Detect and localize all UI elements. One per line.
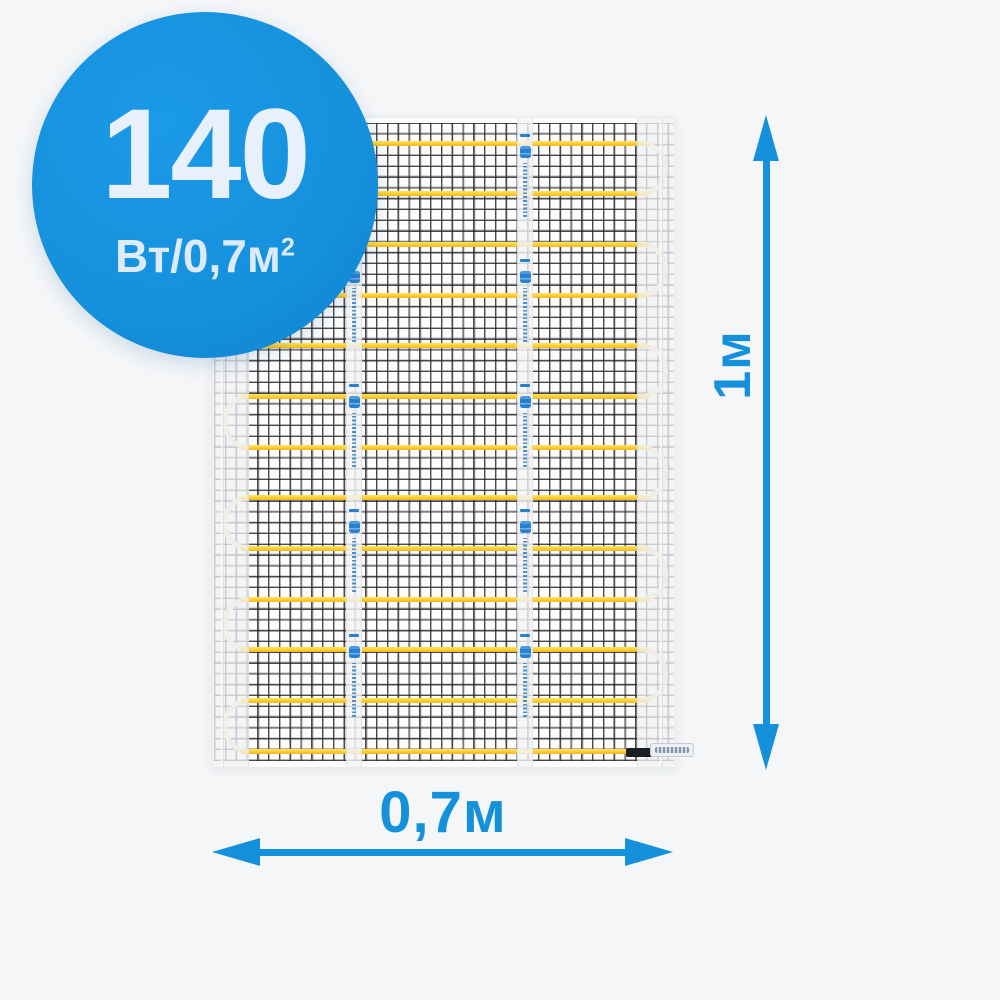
brand-emblem-icon: [349, 521, 360, 533]
selvedge-right: [637, 118, 675, 767]
tape-dash: [349, 634, 359, 637]
tape-dash: [520, 509, 530, 512]
tape-print-group: [518, 134, 532, 217]
heating-cable-run: [240, 495, 650, 500]
heating-cable-run: [240, 749, 650, 754]
tape-micro-print: [523, 163, 527, 217]
heating-cable-run: [240, 445, 650, 450]
tape-dash: [520, 134, 530, 137]
tape-micro-print: [352, 538, 356, 592]
tape-dash: [520, 634, 530, 637]
brand-emblem-icon: [349, 646, 360, 658]
arrow-up-icon: [753, 115, 779, 161]
brand-emblem-icon: [349, 396, 360, 408]
brand-emblem-icon: [520, 646, 531, 658]
dimension-line: [763, 161, 770, 724]
brand-emblem-icon: [520, 271, 531, 283]
tape-print-group: [347, 509, 361, 592]
tape-micro-print: [523, 538, 527, 592]
power-value: 140: [101, 91, 309, 219]
tape-micro-print: [352, 663, 356, 717]
tape-print-group: [347, 634, 361, 717]
heating-cable-run: [240, 597, 650, 602]
tape-print-group: [347, 384, 361, 467]
heating-cable-run: [240, 343, 650, 348]
height-dimension-arrow: [753, 115, 779, 770]
heating-cable-run: [240, 647, 650, 652]
arrow-left-icon: [212, 838, 260, 866]
brand-emblem-icon: [520, 146, 531, 158]
fixing-tape: [517, 118, 533, 767]
tape-micro-print: [523, 288, 527, 342]
heating-cable-run: [240, 546, 650, 551]
product-image: 1м 0,7м 140 Вт/0,7м2: [0, 0, 1000, 1000]
tape-dash: [520, 384, 530, 387]
tape-micro-print: [523, 663, 527, 717]
heating-cable-run: [240, 394, 650, 399]
tape-print-group: [518, 509, 532, 592]
tape-print-group: [518, 634, 532, 717]
tape-crease: [660, 118, 663, 767]
power-unit-superscript: 2: [281, 234, 295, 262]
arrow-right-icon: [625, 838, 673, 866]
dimension-line: [260, 849, 625, 856]
tape-micro-print: [352, 413, 356, 467]
arrow-down-icon: [753, 724, 779, 770]
height-dimension-label: 1м: [703, 305, 763, 425]
tape-dash: [349, 509, 359, 512]
power-unit-text: Вт/0,7м: [115, 230, 281, 282]
heating-cable-run: [240, 698, 650, 703]
tape-micro-print: [352, 288, 356, 342]
tape-dash: [520, 259, 530, 262]
brand-emblem-icon: [520, 521, 531, 533]
width-dimension-label: 0,7м: [343, 783, 543, 843]
brand-emblem-icon: [520, 396, 531, 408]
end-sleeve-connector: [626, 748, 652, 757]
tape-micro-print: [523, 413, 527, 467]
power-unit: Вт/0,7м2: [115, 233, 295, 279]
connector-label: [650, 743, 694, 757]
tape-print-group: [518, 384, 532, 467]
power-badge: 140 Вт/0,7м2: [32, 12, 378, 358]
tape-print-group: [518, 259, 532, 342]
tape-dash: [349, 384, 359, 387]
